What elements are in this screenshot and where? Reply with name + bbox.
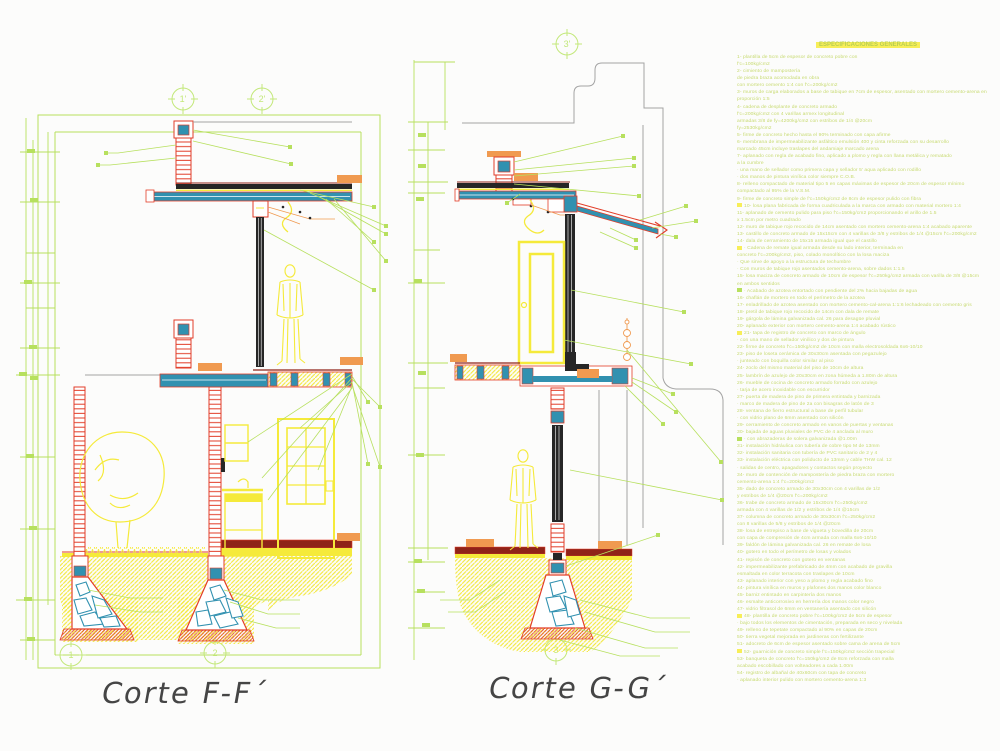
ff-interior-floor [220,533,360,556]
spec-line: 54- registro de albañal de 40x60cm con t… [737,670,999,677]
spec-line: de piedra braza acomodada en obra [737,75,999,82]
gg-door [519,242,564,363]
spec-line: · dos manos de pintura vinílica color si… [737,174,999,181]
spec-line: 30- bajada de aguas pluviales de PVC de … [737,429,999,436]
spec-line: 50- tierra vegetal mejorada en jardinera… [737,634,999,641]
spec-line: 36- trabe de concreto armado de 15x30cm … [737,500,999,507]
spec-line: 8- relleno compactado de material tipo 5… [737,181,999,188]
spec-line: 5- firme de concreto hecho hasta el 90% … [737,132,999,139]
ff-axis-bubble-bottom-1: 1 [56,640,86,670]
spec-line: 6- membrana de impermeabilizante asfálti… [737,139,999,146]
cad-drawing-page: { "palette": { "green_lines": "#b7e05e",… [0,0,1000,751]
spec-line-marker [737,614,742,618]
spec-line: y estribos de 1/4 @20cm f'c=200kg/cm2 [737,493,999,500]
spec-line: · Acabado de azotea entortado con pendie… [737,288,999,295]
spec-line: 10- losa plana fabricada de forma cuadri… [737,203,999,210]
spec-line: 7- aplanado con regla de acabado fino, a… [737,153,999,160]
spec-line: esmaltada en color terracota con traslap… [737,571,999,578]
spec-line: 2- cimiento de mampostería [737,68,999,75]
spec-text-column: ESPECIFICACIONES GENERALES 1- plantilla … [737,41,999,684]
spec-line: 21- tapa de registro de concreto con mar… [737,330,999,337]
spec-line: compactado al 95% de la V.S.M. [737,188,999,195]
spec-line: · bajo todos los elementos de cimentació… [737,620,999,627]
spec-line: 26- mueble de cocina de concreto armado … [737,380,999,387]
spec-line: 15- losa maciza de concreto armado de 10… [737,273,999,280]
spec-line: 24- zoclo del mismo material del piso de… [737,365,999,372]
spec-line: 40- gotero en todo el perímetro de losas… [737,549,999,556]
ff-tree [80,432,164,548]
gg-rain-chain [624,318,631,361]
spec-line: 52- guarnición de concreto simple f'c=15… [737,649,999,656]
corte-ff-drawing: 1' 2' 1 2 [16,84,388,670]
ff-vault-floor [268,372,352,387]
spec-line: cemento-arena 1:4 f'c=200kg/cm2 [737,479,999,486]
spec-line: 42- impermeabilizante prefabricado de 4m… [737,564,999,571]
ff-axis-bubble-top-2: 2' [247,84,277,114]
ff-dimension-values [19,149,38,641]
spec-line: 48- plantilla de concreto pobre f'c=100k… [737,613,999,620]
spec-line: 19- gárgola de lámina galvanizada cal. 2… [737,316,999,323]
spec-line: · aplanado interior pulido con mortero c… [737,677,999,684]
ff-grass [85,547,205,556]
spec-line: 9- firme de concreto simple de f'c=150kg… [737,196,999,203]
spec-line: f'c=200kg/cm2 con 4 varillas armex longi… [737,111,999,118]
spec-line: 51- adocreto de 6cm de espesor asentado … [737,641,999,648]
spec-line: 1- plantilla de 5cm de espesor de concre… [737,54,999,61]
spec-line: 18- pretil de tabique rojo recocido de 1… [737,309,999,316]
spec-line: con capa de compresión de 4cm armada con… [737,535,999,542]
spec-line: con mortero cemento 1:4 con f'c=200kg/cm… [737,82,999,89]
spec-line: · Con muros de tabique rojo asentados ce… [737,266,999,273]
ff-detail-leaders-orange [268,207,335,224]
spec-line: armada con 4 varillas de 1/2 y estribos … [737,507,999,514]
spec-line: 29- cerramiento de concreto armado en va… [737,422,999,429]
spec-line: concreto f'c=200kg/cm2, piso, colado mon… [737,252,999,259]
spec-line: · tarja de acero inoxidable con escurrid… [737,387,999,394]
gg-ground [455,539,632,560]
gg-door-knob [522,303,527,308]
spec-line: marcado 45cm incluye traslapes del andam… [737,146,999,153]
spec-line: 47- vidrio filtrasol de 6mm en ventanerí… [737,606,999,613]
spec-line-marker [737,246,742,250]
spec-line: 37- columna de concreto armado de 30x30c… [737,514,999,521]
ff-mid-floor [85,357,363,387]
ff-section-title: Corte F-F´ [99,676,272,710]
spec-line: 39- faldón de lámina galvanizada cal. 26… [737,542,999,549]
spec-line: · una mano de sellador como primera capa… [737,167,999,174]
spec-line: 27- puerta de madera de pino de primera … [737,394,999,401]
spec-line: · salidas de centro, apagadores y contac… [737,465,999,472]
spec-line: 23- piso de loseta cerámica de 30x30cm a… [737,351,999,358]
spec-line: 38- losa de entrepiso a base de vigueta … [737,528,999,535]
ff-door-handle [326,481,333,491]
ff-roof-orange-pad [337,175,362,183]
spec-line-marker [737,649,742,653]
spec-line: 14- dala de cerramiento de 15x15 armada … [737,238,999,245]
spec-line: 28- ventana de fierro estructural a base… [737,408,999,415]
gg-dimension-chain [408,60,455,660]
ff-axis-bubble-top-1: 1' [168,84,198,114]
gg-mid-floor [450,352,632,386]
spec-line-marker [737,203,742,207]
spec-line: f'c=100kg/cm2 [737,61,999,68]
ff-middle-wall [209,387,221,556]
gg-wall-profile [462,63,723,545]
spec-line: en ambos sentidos [737,281,999,288]
spec-line: · Cadena de remate igual armada desde su… [737,245,999,252]
spec-line: armadas 3/8 de fy=4200kg/cm2 con estribo… [737,118,999,125]
spec-line: · con abrazaderas de solera galvanizada … [737,436,999,443]
spec-line: 12- muro de tabique rojo recocido de 14c… [737,224,999,231]
spec-line: · Que sirve de apoyo a la estructura de … [737,259,999,266]
ff-wall-cabinet [225,425,248,461]
spec-line-marker [737,288,742,292]
gg-canopy [577,203,667,238]
gg-vault-floor [455,365,520,380]
spec-line: 41- repisón de concreto con gotero en ve… [737,557,999,564]
spec-line: 22- firme de concreto f'c=150kg/cm2 de 1… [737,344,999,351]
spec-line: 13- castillo de concreto armado de 15x15… [737,231,999,238]
ff-faucet [238,479,248,488]
spec-line: proporción 1:5 [737,96,999,103]
spec-line: acabado escobillado con volteadores a ca… [737,663,999,670]
spec-line: 31- instalación hidráulica con tubería d… [737,443,999,450]
svg-text:1': 1' [180,94,187,104]
spec-line: 43- aplanado interior con yeso a plomo y… [737,578,999,585]
spec-title: ESPECIFICACIONES GENERALES [737,41,999,50]
spec-line: a la cumbre [737,160,999,167]
ff-mid-parapet [174,320,193,368]
spec-lines: 1- plantilla de 5cm de espesor de concre… [737,54,999,684]
corte-gg-drawing: 3' 3 [408,29,724,665]
spec-line: 44- pintura vinílica en muros y plafones… [737,585,999,592]
spec-line: 4- cadena de desplante de concreto armad… [737,104,999,111]
spec-line: 34- muro de contención de mampostería de… [737,472,999,479]
spec-line: 35- dado de concreto armado de 30x30cm c… [737,486,999,493]
spec-line: 16- chaflán de mortero en todo el períme… [737,295,999,302]
gg-upper-column [564,196,577,360]
spec-line: 3- muros de carga elaborados a base de t… [737,89,999,96]
spec-line: 53- banqueta de concreto f'c=150kg/cm2 d… [737,656,999,663]
spec-line: · con vidrio plano de 6mm asentado con s… [737,415,999,422]
spec-line: 49- relleno de tepetate compactado al 90… [737,627,999,634]
gg-axis-bubble-top: 3' [552,29,582,59]
svg-text:2': 2' [259,94,266,104]
ff-person-figure [277,265,305,365]
spec-line: 33- instalación eléctrica con poliducto … [737,457,999,464]
ff-column [256,217,264,367]
gg-lower-column [551,388,564,560]
spec-line: 32- instalación sanitaria con tubería de… [737,450,999,457]
spec-line: 46- esmalte anticorrosivo en herrería do… [737,599,999,606]
ff-roof-beam [253,201,268,217]
gg-person-figure [510,450,538,550]
spec-line: 45- barniz entintado en carpintería dos … [737,592,999,599]
ff-door [278,419,334,558]
spec-line-marker [737,331,742,335]
spec-line: fy=2530kg/cm2 [737,125,999,132]
spec-line: · junteado con boquilla color similar al… [737,358,999,365]
spec-line: · con una mano de sellador vinílico y do… [737,337,999,344]
spec-line: x 1.5cm por metro cuadrado [737,217,999,224]
svg-text:3': 3' [564,39,571,49]
spec-line-marker [737,437,742,441]
spec-line: 11- aplanado de cemento pulido para piso… [737,210,999,217]
spec-line: 25- lambrín de azulejo de 20x30cm en zon… [737,373,999,380]
spec-line: 17- enladrillado de azotea asentado con … [737,302,999,309]
spec-line: 20- aplanado exterior con mortero cement… [737,323,999,330]
svg-text:1: 1 [68,650,73,660]
spec-line: · marco de madera de pino de 2a con bisa… [737,401,999,408]
ff-top-parapet [174,121,193,185]
svg-text:2: 2 [212,648,217,658]
spec-line: con 8 varillas de 5/8 y estribos de 1/4 … [737,521,999,528]
gg-section-title: Corte G-G´ [486,671,671,705]
